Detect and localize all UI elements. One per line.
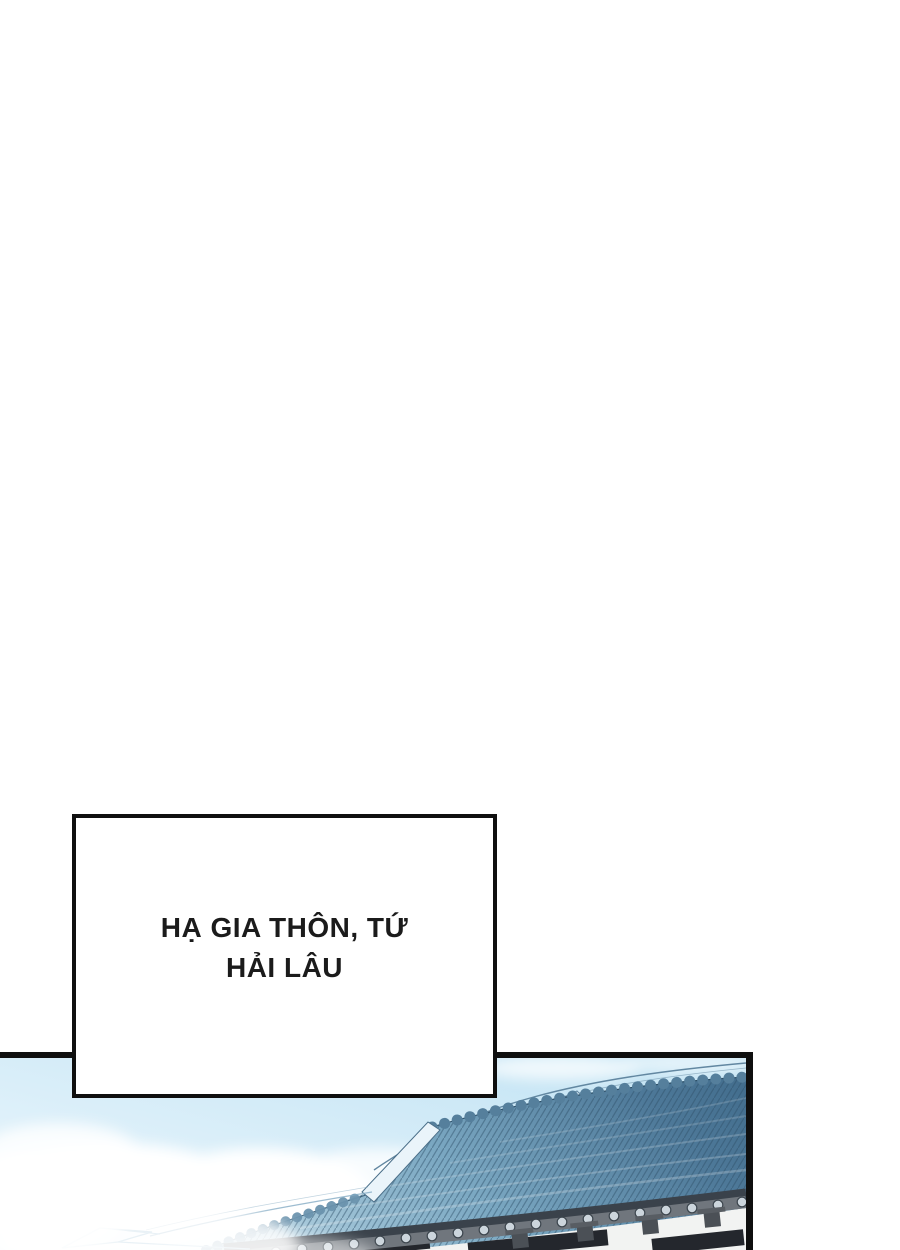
caption-box: HẠ GIA THÔN, TỨ HẢI LÂU: [72, 814, 497, 1098]
caption-text: HẠ GIA THÔN, TỨ HẢI LÂU: [161, 908, 408, 988]
comic-page: HẠ GIA THÔN, TỨ HẢI LÂU: [0, 0, 900, 1250]
caption-line-2: HẢI LÂU: [161, 948, 408, 988]
caption-line-1: HẠ GIA THÔN, TỨ: [161, 908, 408, 948]
top-margin: [0, 0, 900, 814]
